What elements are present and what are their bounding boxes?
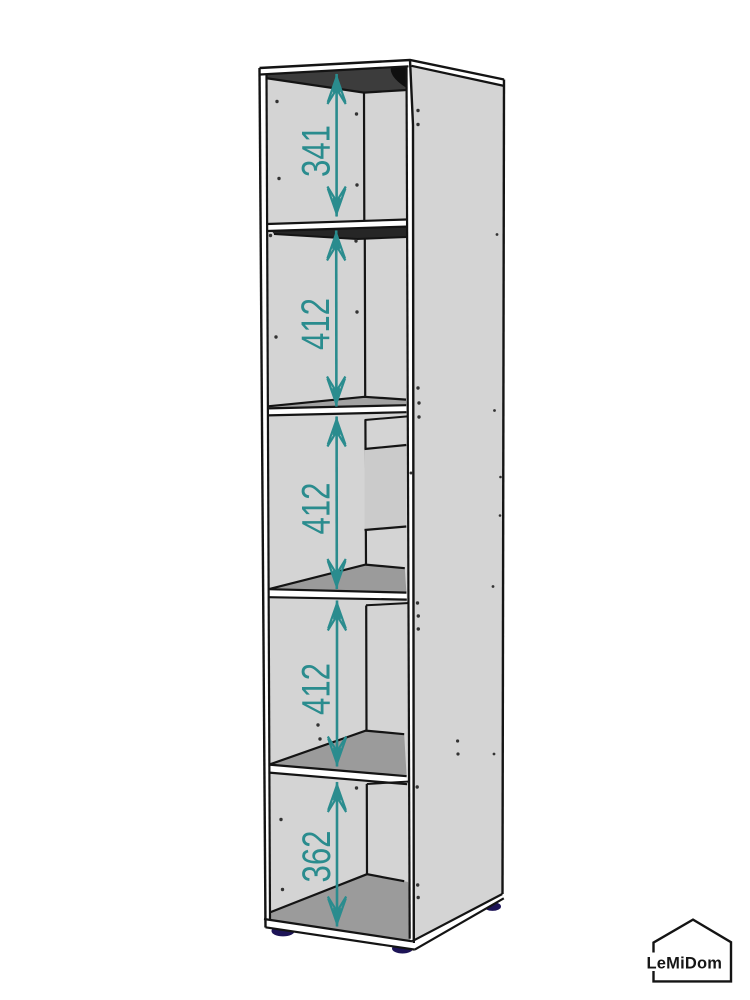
svg-text:412: 412 [294,483,338,535]
svg-text:362: 362 [295,831,339,883]
svg-text:412: 412 [294,663,338,715]
svg-text:412: 412 [294,298,338,350]
svg-text:LeMiDom: LeMiDom [647,955,723,973]
svg-text:341: 341 [294,125,338,177]
